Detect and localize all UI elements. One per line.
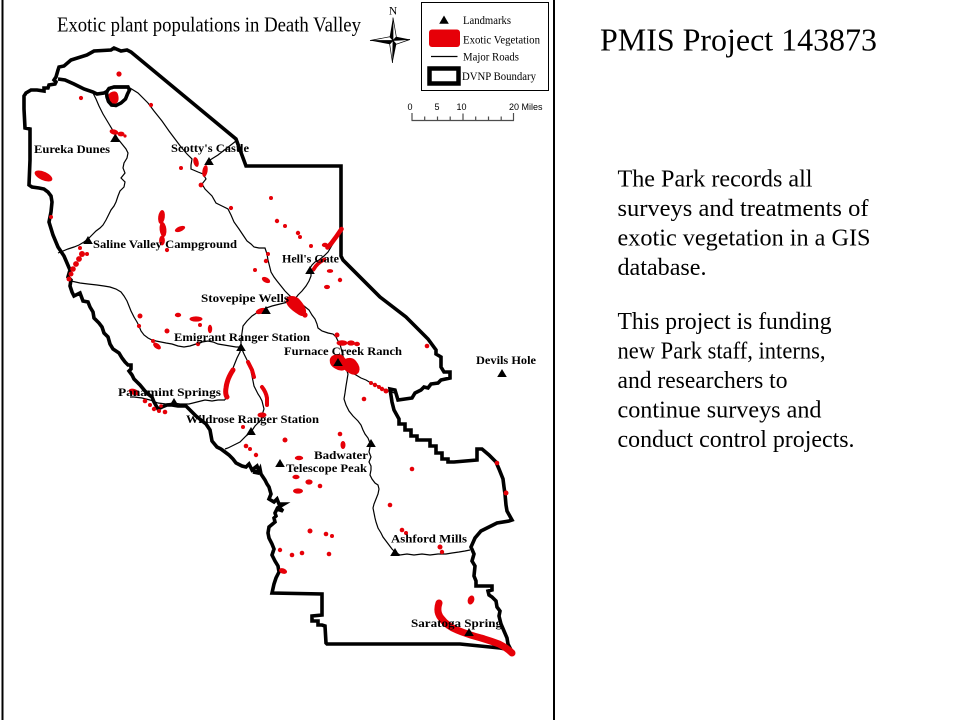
svg-text:DVNP Boundary: DVNP Boundary	[462, 71, 536, 83]
svg-text:Panamint Springs: Panamint Springs	[118, 385, 221, 399]
svg-text:exotic vegetation in a GIS: exotic vegetation in a GIS	[618, 226, 871, 252]
svg-text:conduct control projects.: conduct control projects.	[618, 427, 855, 453]
svg-text:Badwater: Badwater	[314, 448, 369, 462]
svg-text:Hell's Gate: Hell's Gate	[282, 252, 340, 266]
svg-text:Ashford Mills: Ashford Mills	[391, 532, 467, 546]
svg-text:5: 5	[434, 102, 439, 112]
svg-text:Devils Hole: Devils Hole	[476, 353, 537, 367]
svg-text:Telescope Peak: Telescope Peak	[286, 461, 367, 475]
svg-text:surveys and treatments of: surveys and treatments of	[618, 196, 869, 222]
svg-text:Wildrose Ranger Station: Wildrose Ranger Station	[186, 412, 319, 426]
svg-text:Exotic plant populations in De: Exotic plant populations in Death Valley	[57, 13, 361, 37]
svg-text:Landmarks: Landmarks	[463, 15, 511, 27]
svg-text:Stovepipe Wells: Stovepipe Wells	[201, 291, 289, 305]
svg-text:continue surveys and: continue surveys and	[618, 397, 822, 423]
svg-text:Scotty's Castle: Scotty's Castle	[171, 141, 250, 155]
svg-text:Saline Valley Campground: Saline Valley Campground	[93, 237, 237, 251]
svg-text:N: N	[389, 6, 398, 18]
svg-text:PMIS Project 143873: PMIS Project 143873	[600, 22, 877, 58]
svg-text:Emigrant Ranger Station: Emigrant Ranger Station	[174, 330, 310, 344]
svg-text:Major Roads: Major Roads	[463, 52, 519, 64]
svg-text:Saratoga Spring: Saratoga Spring	[411, 616, 502, 630]
svg-text:Furnace Creek Ranch: Furnace Creek Ranch	[284, 344, 402, 358]
svg-text:The Park records all: The Park records all	[618, 167, 813, 193]
svg-text:0: 0	[407, 102, 412, 112]
svg-text:Eureka Dunes: Eureka Dunes	[34, 142, 110, 156]
svg-text:Exotic Vegetation: Exotic Vegetation	[463, 35, 540, 47]
svg-text:This project is funding: This project is funding	[618, 309, 832, 335]
svg-text:database.: database.	[618, 255, 707, 281]
svg-text:10: 10	[456, 102, 466, 112]
svg-text:and researchers to: and researchers to	[618, 368, 788, 394]
svg-text:20 Miles: 20 Miles	[509, 102, 543, 112]
svg-text:new Park staff, interns,: new Park staff, interns,	[618, 338, 826, 364]
